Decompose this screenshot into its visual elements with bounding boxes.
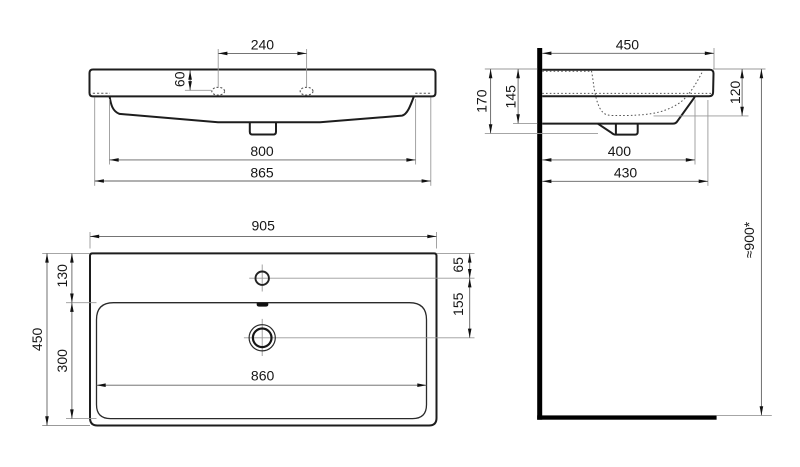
svg-text:170: 170 — [474, 89, 490, 113]
svg-text:60: 60 — [171, 71, 187, 87]
svg-text:905: 905 — [252, 217, 276, 233]
svg-text:400: 400 — [608, 143, 632, 159]
svg-text:300: 300 — [54, 349, 70, 373]
svg-text:430: 430 — [614, 165, 638, 181]
svg-text:450: 450 — [616, 36, 640, 52]
svg-text:≈900*: ≈900* — [741, 221, 757, 258]
svg-text:130: 130 — [54, 264, 70, 288]
svg-text:240: 240 — [251, 36, 275, 52]
svg-text:155: 155 — [450, 292, 466, 316]
svg-text:800: 800 — [250, 143, 274, 159]
svg-text:65: 65 — [450, 257, 466, 273]
svg-text:450: 450 — [29, 328, 45, 352]
svg-text:145: 145 — [502, 85, 518, 109]
svg-text:865: 865 — [250, 165, 274, 181]
svg-text:120: 120 — [727, 81, 743, 105]
svg-text:860: 860 — [251, 368, 275, 384]
